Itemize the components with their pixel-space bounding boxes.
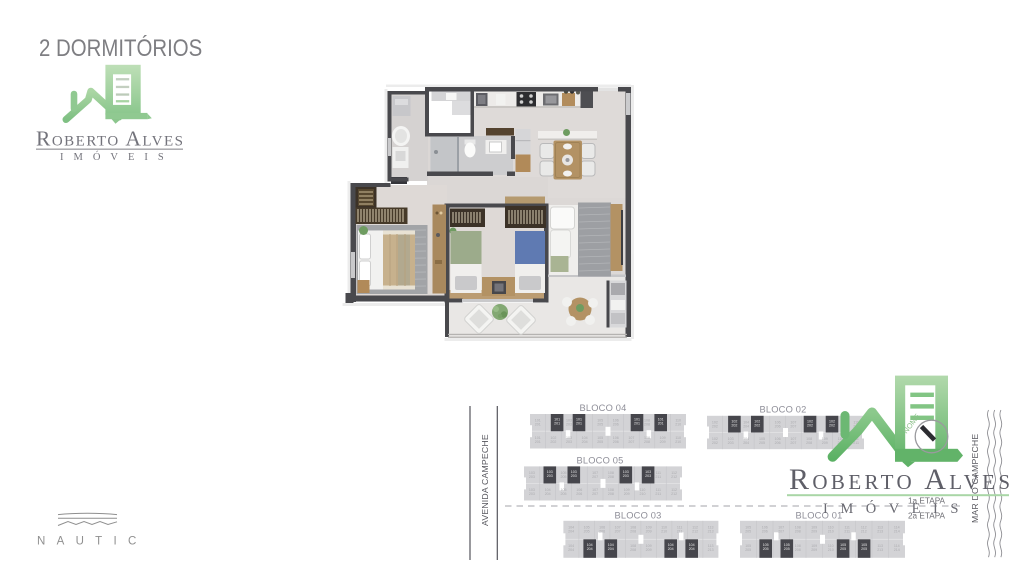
svg-text:104204: 104204 [689, 543, 695, 551]
svg-text:111211: 111211 [844, 525, 850, 533]
svg-text:109209: 109209 [660, 436, 666, 444]
svg-text:109209: 109209 [646, 525, 652, 533]
svg-text:103203: 103203 [645, 470, 651, 478]
svg-text:112212: 112212 [692, 525, 698, 533]
svg-text:108208: 108208 [608, 471, 614, 479]
svg-text:102202: 102202 [731, 419, 737, 427]
svg-text:101201: 101201 [554, 418, 560, 426]
svg-text:Roberto Alves: Roberto Alves [36, 127, 183, 151]
svg-text:103203: 103203 [566, 419, 572, 427]
svg-text:107207: 107207 [790, 437, 796, 445]
svg-text:113213: 113213 [708, 544, 714, 552]
svg-text:110210: 110210 [675, 419, 681, 427]
svg-text:106206: 106206 [613, 419, 619, 427]
svg-text:105205: 105205 [745, 544, 751, 552]
svg-text:BLOCO 03: BLOCO 03 [614, 511, 661, 521]
svg-text:111211: 111211 [677, 525, 683, 533]
svg-text:103203: 103203 [623, 470, 629, 478]
svg-text:105205: 105205 [763, 543, 769, 551]
svg-text:108208: 108208 [795, 525, 801, 533]
svg-text:101201: 101201 [535, 436, 541, 444]
svg-text:110210: 110210 [661, 525, 667, 533]
svg-text:106206: 106206 [775, 437, 781, 445]
svg-text:102202: 102202 [550, 436, 556, 444]
svg-text:101201: 101201 [535, 419, 541, 427]
svg-text:104204: 104204 [743, 437, 749, 445]
svg-text:109209: 109209 [811, 544, 817, 552]
svg-text:104204: 104204 [587, 543, 593, 551]
svg-text:105205: 105205 [597, 436, 603, 444]
svg-text:103203: 103203 [529, 471, 535, 479]
svg-text:109209: 109209 [646, 544, 652, 552]
svg-text:113213: 113213 [877, 544, 883, 552]
svg-text:110210: 110210 [828, 525, 834, 533]
svg-text:109209: 109209 [811, 525, 817, 533]
svg-text:103203: 103203 [728, 437, 734, 445]
svg-text:103203: 103203 [547, 470, 553, 478]
svg-text:102202: 102202 [754, 419, 760, 427]
svg-text:106206: 106206 [599, 525, 605, 533]
svg-text:110210: 110210 [828, 544, 834, 552]
svg-text:AVENIDA CAMPECHE: AVENIDA CAMPECHE [480, 434, 490, 526]
svg-text:101201: 101201 [576, 418, 582, 426]
svg-text:108208: 108208 [644, 436, 650, 444]
svg-text:104204: 104204 [568, 525, 574, 533]
svg-text:103203: 103203 [566, 436, 572, 444]
svg-text:105205: 105205 [784, 543, 790, 551]
svg-text:104204: 104204 [743, 420, 749, 428]
svg-text:101201: 101201 [658, 418, 664, 426]
svg-text:IMÓVEIS: IMÓVEIS [823, 500, 971, 517]
svg-text:108208: 108208 [608, 488, 614, 496]
svg-text:105205: 105205 [561, 471, 567, 479]
svg-text:107207: 107207 [615, 525, 621, 533]
svg-text:107207: 107207 [592, 488, 598, 496]
svg-text:104204: 104204 [545, 488, 551, 496]
svg-text:BLOCO 04: BLOCO 04 [579, 403, 626, 413]
svg-text:105205: 105205 [861, 543, 867, 551]
svg-text:108208: 108208 [806, 437, 812, 445]
svg-text:111211: 111211 [655, 471, 661, 479]
svg-text:107207: 107207 [628, 436, 634, 444]
svg-text:103203: 103203 [529, 488, 535, 496]
svg-text:IMÓVEIS: IMÓVEIS [60, 151, 174, 163]
svg-text:104204: 104204 [668, 543, 674, 551]
svg-text:105205: 105205 [597, 419, 603, 427]
svg-text:104204: 104204 [608, 543, 614, 551]
svg-text:112212: 112212 [861, 525, 867, 533]
svg-text:109209: 109209 [822, 437, 828, 445]
svg-text:106206: 106206 [762, 525, 768, 533]
svg-text:114214: 114214 [894, 525, 900, 533]
svg-text:107207: 107207 [592, 471, 598, 479]
svg-text:110210: 110210 [640, 488, 646, 496]
svg-text:NAUTIC: NAUTIC [37, 536, 148, 548]
svg-text:106206: 106206 [775, 420, 781, 428]
svg-text:101201: 101201 [634, 418, 640, 426]
svg-text:108208: 108208 [630, 525, 636, 533]
svg-text:104204: 104204 [568, 544, 574, 552]
svg-text:110210: 110210 [675, 436, 681, 444]
svg-text:105205: 105205 [759, 437, 765, 445]
svg-text:104204: 104204 [582, 436, 588, 444]
svg-text:105205: 105205 [840, 543, 846, 551]
svg-text:107207: 107207 [778, 525, 784, 533]
svg-text:105205: 105205 [745, 525, 751, 533]
svg-text:107207: 107207 [790, 420, 796, 428]
svg-text:112212: 112212 [671, 471, 677, 479]
svg-text:102202: 102202 [829, 419, 835, 427]
svg-text:113213: 113213 [708, 525, 714, 533]
svg-text:102202: 102202 [807, 419, 813, 427]
svg-text:108208: 108208 [795, 544, 801, 552]
svg-text:112212: 112212 [671, 488, 677, 496]
svg-text:111211: 111211 [655, 488, 661, 496]
svg-text:102202: 102202 [712, 420, 718, 428]
svg-text:Roberto Alves: Roberto Alves [789, 463, 1010, 496]
svg-text:106206: 106206 [576, 488, 582, 496]
svg-text:113213: 113213 [877, 525, 883, 533]
svg-text:102202: 102202 [712, 437, 718, 445]
svg-text:108208: 108208 [644, 419, 650, 427]
svg-text:108208: 108208 [630, 544, 636, 552]
svg-text:103203: 103203 [571, 470, 577, 478]
svg-text:105205: 105205 [584, 525, 590, 533]
svg-text:114214: 114214 [894, 544, 900, 552]
svg-text:BLOCO 02: BLOCO 02 [759, 405, 806, 415]
svg-text:106206: 106206 [613, 436, 619, 444]
svg-text:109209: 109209 [624, 488, 630, 496]
svg-text:BLOCO 05: BLOCO 05 [576, 456, 623, 466]
svg-text:105205: 105205 [561, 488, 567, 496]
